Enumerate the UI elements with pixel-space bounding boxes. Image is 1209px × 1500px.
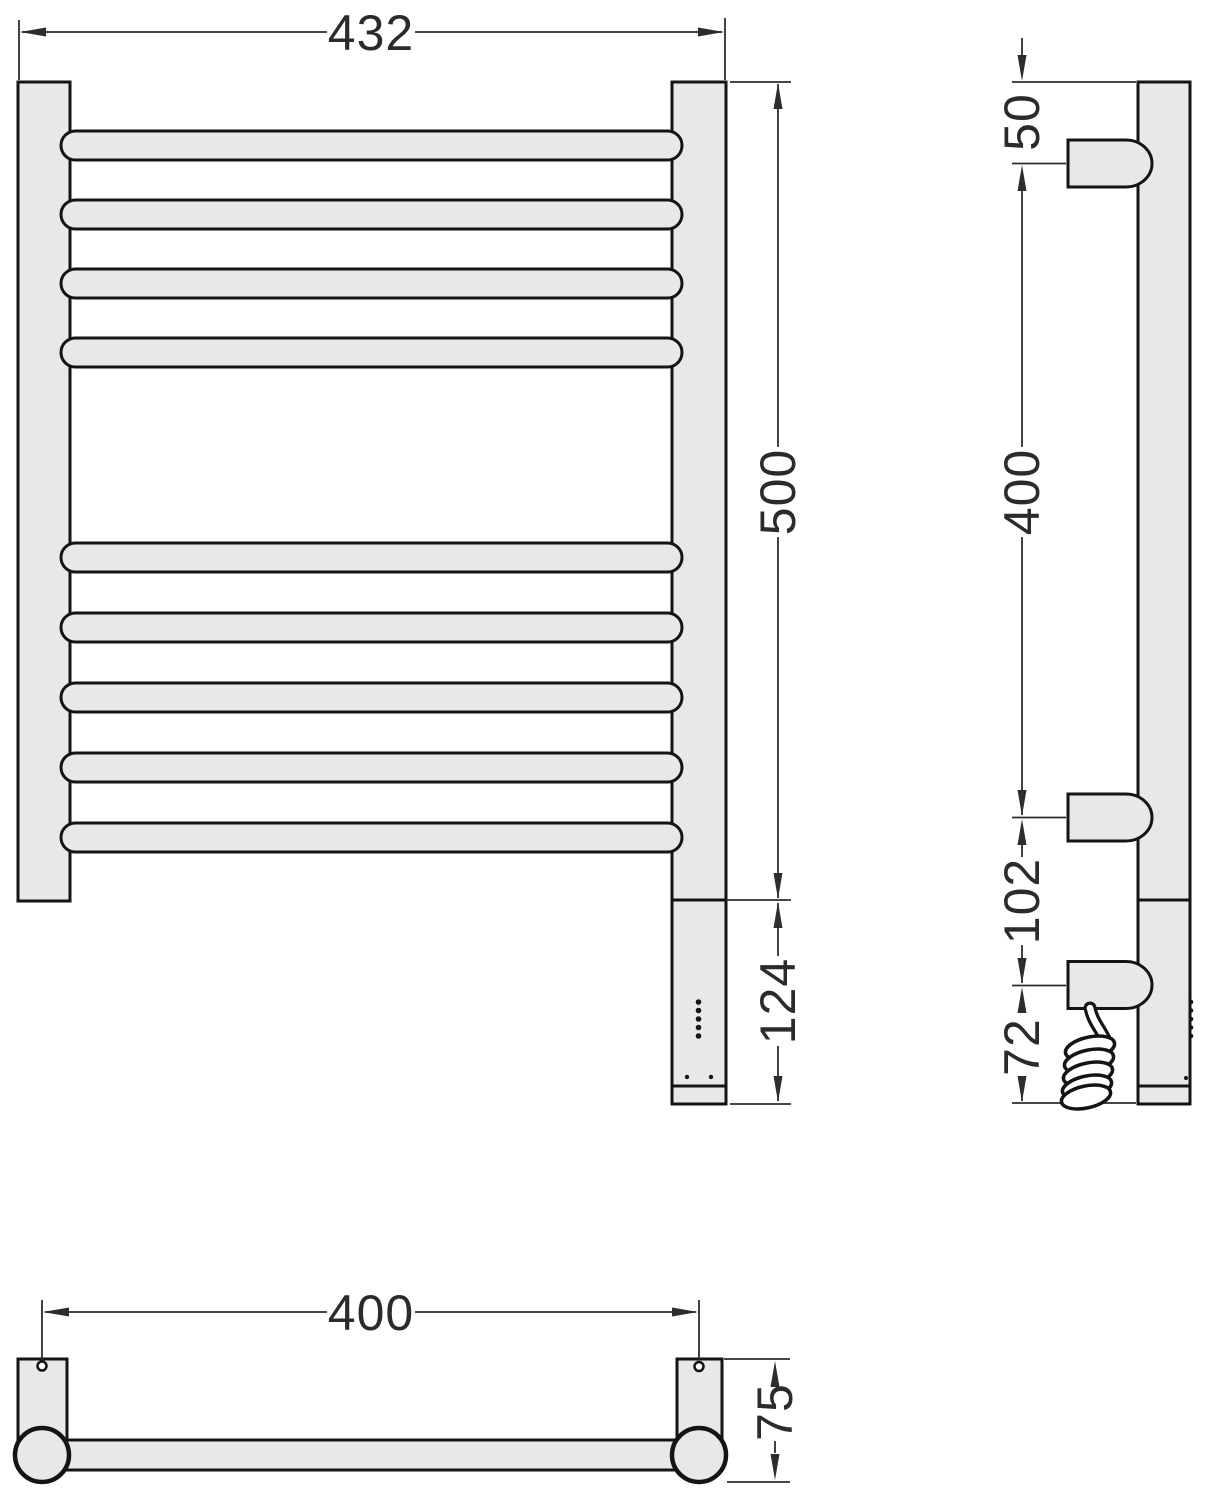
plan-left-post-circle	[15, 1428, 69, 1482]
led-dot	[1189, 1025, 1194, 1030]
towel-bar	[61, 823, 682, 852]
side-view	[1068, 82, 1193, 1104]
arrowhead-right	[698, 28, 724, 37]
front-right-post	[672, 82, 726, 1104]
front-left-post	[18, 82, 70, 901]
towel-bar	[61, 131, 682, 160]
dim-text-bracket-to-power: 102	[994, 858, 1050, 944]
led-dot	[1189, 1008, 1194, 1013]
technical-drawing: 432 500 124	[0, 0, 1209, 1500]
screw-dot	[709, 1075, 713, 1079]
power-bracket	[1068, 962, 1152, 1009]
arrowhead-up	[771, 1361, 780, 1387]
power-cable-coil	[1059, 1008, 1116, 1113]
led-dot	[696, 1008, 702, 1014]
towel-bar	[61, 753, 682, 782]
arrowhead-left	[43, 1308, 69, 1317]
dim-text-bracket-spacing: 400	[994, 449, 1050, 535]
arrowhead-up	[1018, 165, 1027, 191]
arrowhead-up	[1018, 819, 1027, 845]
led-dot	[1189, 1034, 1194, 1039]
arrowhead-up	[774, 83, 783, 109]
dim-text-rail-height: 500	[750, 449, 806, 535]
arrowhead-down	[1018, 958, 1027, 984]
mounting-hole	[695, 1362, 704, 1371]
plan-view	[15, 1359, 726, 1482]
dim-text-power-to-bottom: 72	[994, 1018, 1050, 1076]
arrowhead-down	[1018, 1076, 1027, 1102]
drawing-canvas: 432 500 124	[0, 0, 1209, 1500]
led-dot	[696, 1025, 702, 1031]
towel-bar	[61, 543, 682, 572]
dim-text-top-offset: 50	[994, 93, 1050, 151]
dim-text-mounting-span: 400	[328, 1285, 414, 1341]
side-post	[1138, 82, 1190, 1104]
plan-right-post-circle	[672, 1428, 726, 1482]
arrowhead-down	[1018, 790, 1027, 816]
towel-bar	[61, 338, 682, 367]
plan-crossbar	[42, 1440, 699, 1470]
arrowhead-right	[672, 1308, 698, 1317]
towel-bar	[61, 200, 682, 229]
side-dimensions: 50 400 102 72	[994, 38, 1136, 1103]
dim-text-wall-depth: 75	[747, 1383, 803, 1441]
led-dot	[696, 1016, 702, 1022]
arrowhead-up	[1018, 987, 1027, 1013]
screw-dot	[685, 1075, 689, 1079]
dim-text-control-height: 124	[750, 958, 806, 1044]
mounting-hole	[38, 1362, 47, 1371]
screw-dot	[1184, 1076, 1188, 1080]
front-view	[18, 82, 726, 1104]
wall-bracket-lower	[1068, 794, 1152, 841]
arrowhead-down	[771, 1454, 780, 1480]
wall-bracket-top	[1068, 140, 1152, 187]
led-dot	[1189, 1000, 1194, 1005]
towel-bar	[61, 683, 682, 712]
arrowhead-down	[1018, 55, 1027, 81]
dim-text-overall-width: 432	[328, 5, 414, 61]
arrowhead-down	[774, 873, 783, 899]
arrowhead-down	[774, 1076, 783, 1102]
led-dot	[696, 999, 702, 1005]
led-dot	[696, 1033, 702, 1039]
towel-bar	[61, 613, 682, 642]
arrowhead-left	[20, 28, 46, 37]
arrowhead-up	[774, 902, 783, 928]
towel-bar	[61, 269, 682, 298]
led-dot	[1189, 1017, 1194, 1022]
